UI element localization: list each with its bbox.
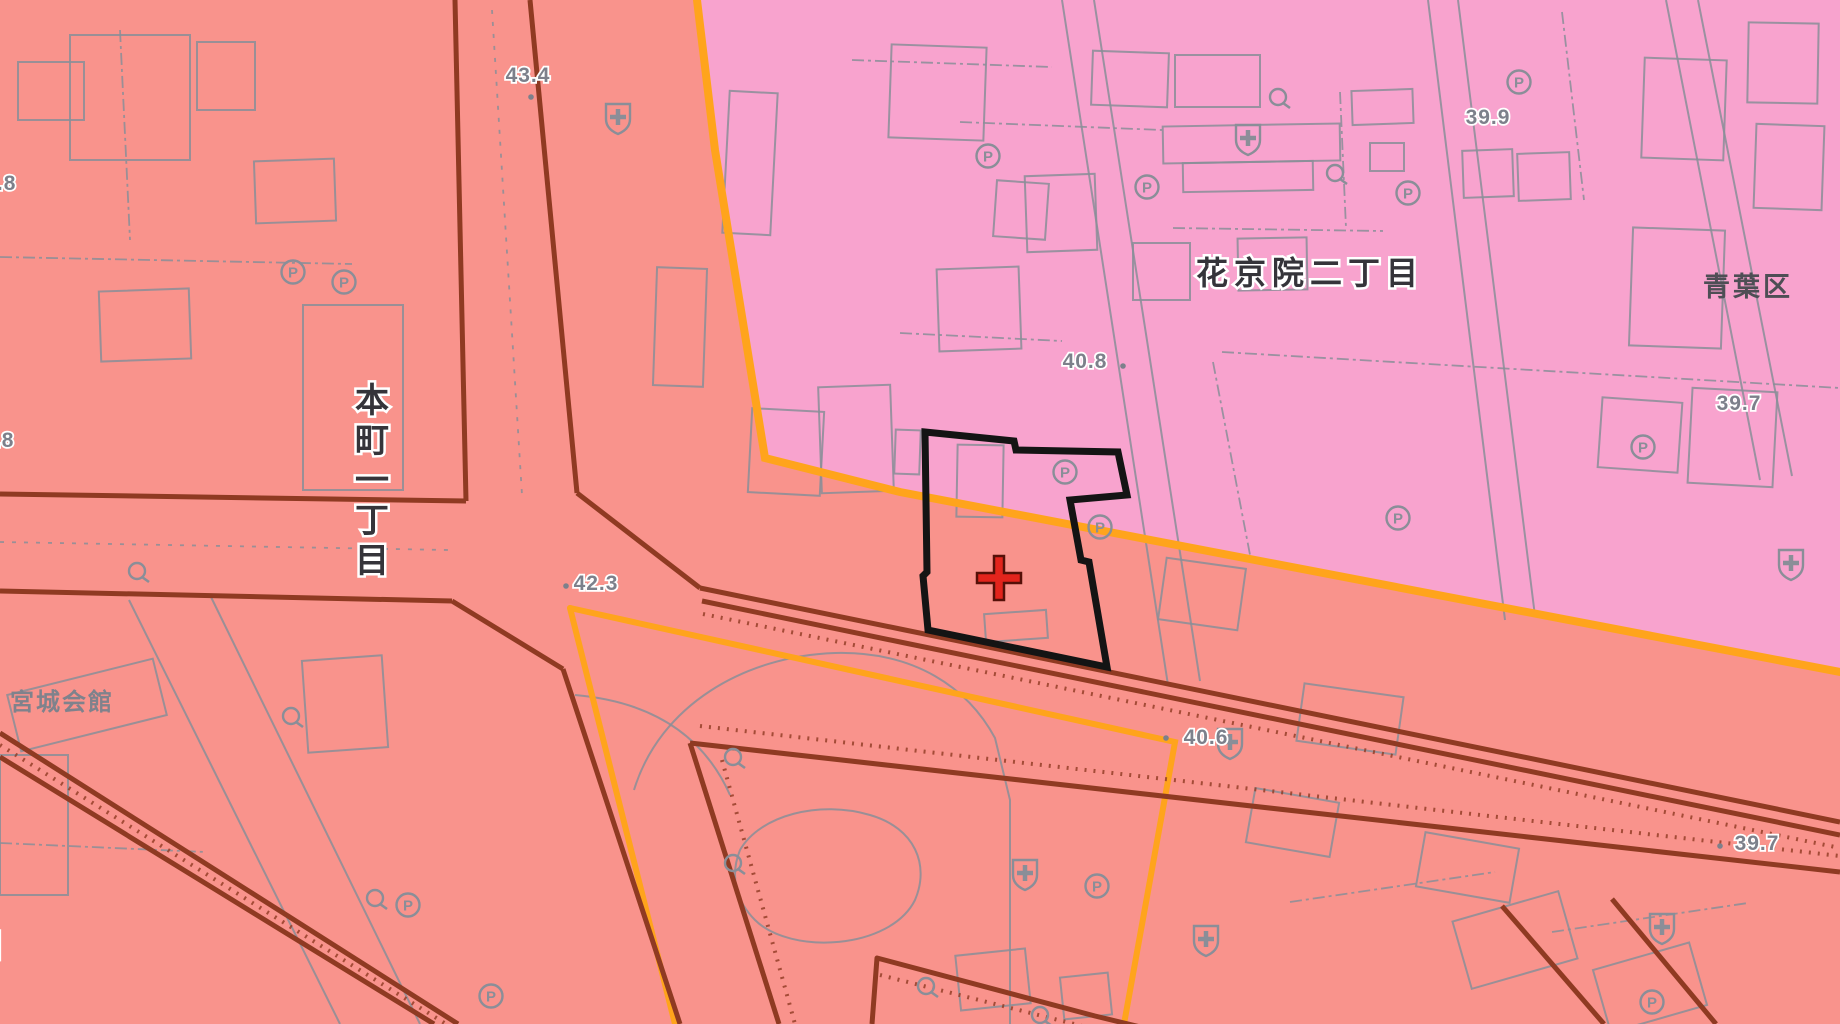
poi-label-miyagi-kaikan: 宮城会館 (10, 688, 114, 716)
spot-elevation-value: 43.8 (0, 172, 16, 195)
district-label-honcho-1chome: 本町一丁目 (355, 382, 389, 580)
spot-elevation-dot (1717, 843, 1723, 849)
spot-elevation: 43.8 (0, 429, 14, 452)
district-label-partial: 目 (0, 930, 3, 963)
parking-icon-letter: P (339, 275, 349, 292)
spot-elevation: 39.9 (1466, 106, 1511, 129)
district-label-kakyoin-2chome: 花京院二丁目 (1196, 255, 1424, 291)
parking-icon-letter: P (1647, 995, 1657, 1012)
parking-icon-letter: P (1403, 186, 1413, 203)
spot-elevation: 43.8 (0, 172, 16, 195)
vertical-label-char: 一 (355, 462, 389, 500)
parking-icon-letter: P (403, 898, 413, 915)
parking-icon-letter: P (288, 265, 298, 282)
spot-elevation-value: 42.3 (574, 572, 619, 595)
parking-icon-letter: P (1638, 440, 1648, 457)
spot-elevation-value: 43.4 (506, 64, 551, 87)
parking-icon-letter: P (1393, 511, 1403, 528)
spot-elevation-value: 39.9 (1466, 106, 1511, 129)
spot-elevation-dot (563, 583, 569, 589)
spot-elevation-value: 39.7 (1717, 392, 1762, 415)
parking-icon-letter: P (1060, 465, 1070, 482)
spot-elevation-dot (528, 94, 534, 100)
vertical-label-char: 町 (355, 422, 389, 460)
vertical-label-char: 丁 (355, 502, 389, 540)
spot-elevation-value: 40.6 (1184, 726, 1229, 749)
zoning-map[interactable]: PPPPPPPPPPPPPP43.443.843.839.940.839.742… (0, 0, 1840, 1024)
spot-elevation-dot (1163, 735, 1169, 741)
vertical-label-char: 本 (355, 382, 389, 420)
ward-label-aoba-ku: 青葉区 (1703, 272, 1793, 302)
parking-icon-letter: P (1095, 520, 1105, 537)
vertical-label-char: 目 (355, 542, 389, 580)
spot-elevation-value: 39.7 (1735, 832, 1780, 855)
parking-icon-letter: P (1142, 180, 1152, 197)
parking-icon-letter: P (486, 989, 496, 1006)
parking-icon-letter: P (983, 149, 993, 166)
spot-elevation-dot (1120, 363, 1126, 369)
spot-elevation: 39.7 (1717, 392, 1762, 415)
spot-elevation-value: 43.8 (0, 429, 14, 452)
map-viewport[interactable]: PPPPPPPPPPPPPP43.443.843.839.940.839.742… (0, 0, 1840, 1024)
spot-elevation-value: 40.8 (1063, 350, 1108, 373)
parking-icon-letter: P (1514, 75, 1524, 92)
parking-icon-letter: P (1092, 879, 1102, 896)
